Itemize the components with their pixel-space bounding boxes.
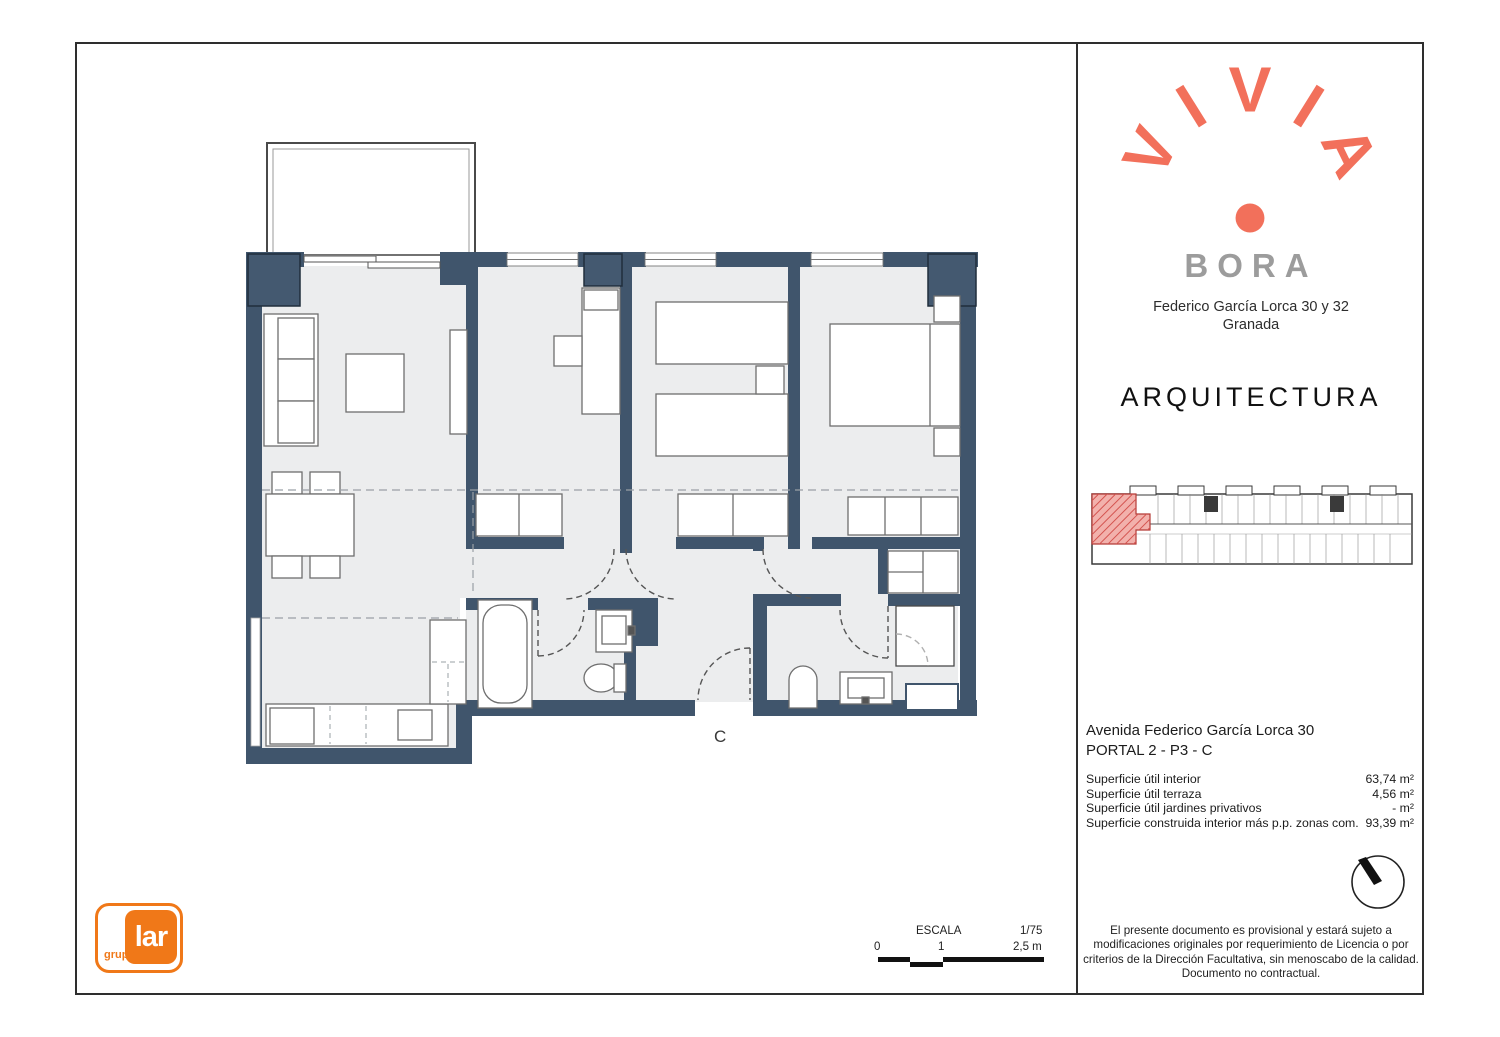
terrace <box>267 143 475 255</box>
grupo-label: grupo <box>104 949 135 961</box>
key-plan <box>1086 472 1418 580</box>
north-arrow-icon <box>1348 852 1408 912</box>
windows <box>507 253 883 266</box>
scale-ratio: 1/75 <box>1020 925 1042 937</box>
scale-tick-0: 0 <box>874 941 880 953</box>
area-row: Superficie construida interior más p.p. … <box>1086 816 1414 831</box>
area-row: Superficie útil interior 63,74 m² <box>1086 772 1414 787</box>
project-name: BORA <box>1078 247 1424 285</box>
svg-text:V: V <box>1229 58 1272 125</box>
scale-bar-segment <box>878 957 910 962</box>
project-address-line1: Federico García Lorca 30 y 32 <box>1078 299 1424 315</box>
area-row: Superficie útil terraza 4,56 m² <box>1086 787 1414 802</box>
area-row: Superficie útil jardines privativos - m² <box>1086 801 1414 816</box>
scale-bar-segment <box>910 962 943 967</box>
scale-bar-segment <box>943 957 1044 962</box>
scale-tick-2: 2,5 m <box>1013 941 1042 953</box>
panel-divider <box>1076 42 1078 995</box>
scale-title: ESCALA <box>916 925 961 937</box>
scale-tick-1: 1 <box>938 941 944 953</box>
disclaimer-text: El presente documento es provisional y e… <box>1082 924 1420 982</box>
unit-portal: PORTAL 2 - P3 - C <box>1086 742 1416 759</box>
svg-text:I: I <box>1282 71 1335 142</box>
svg-text:I: I <box>1165 71 1218 142</box>
wall-lining <box>251 618 260 746</box>
utility-niche <box>906 684 958 710</box>
floor-plan: C <box>0 0 1076 1037</box>
area-table: Superficie útil interior 63,74 m² Superf… <box>1086 772 1414 830</box>
svg-text:V: V <box>1109 116 1193 186</box>
unit-street: Avenida Federico García Lorca 30 <box>1086 722 1416 739</box>
svg-text:A: A <box>1307 115 1392 188</box>
unit-letter: C <box>714 727 726 746</box>
discipline-title: ARQUITECTURA <box>1078 382 1424 413</box>
vivia-logo: V I V I A <box>1100 58 1400 238</box>
grupo-lar-logo: lar grupo <box>95 903 183 973</box>
unit-info: Avenida Federico García Lorca 30 PORTAL … <box>1086 722 1416 759</box>
plan-sheet: C V I V I A BORA Federico García Lorca 3… <box>0 0 1500 1037</box>
project-address-line2: Granada <box>1078 317 1424 333</box>
